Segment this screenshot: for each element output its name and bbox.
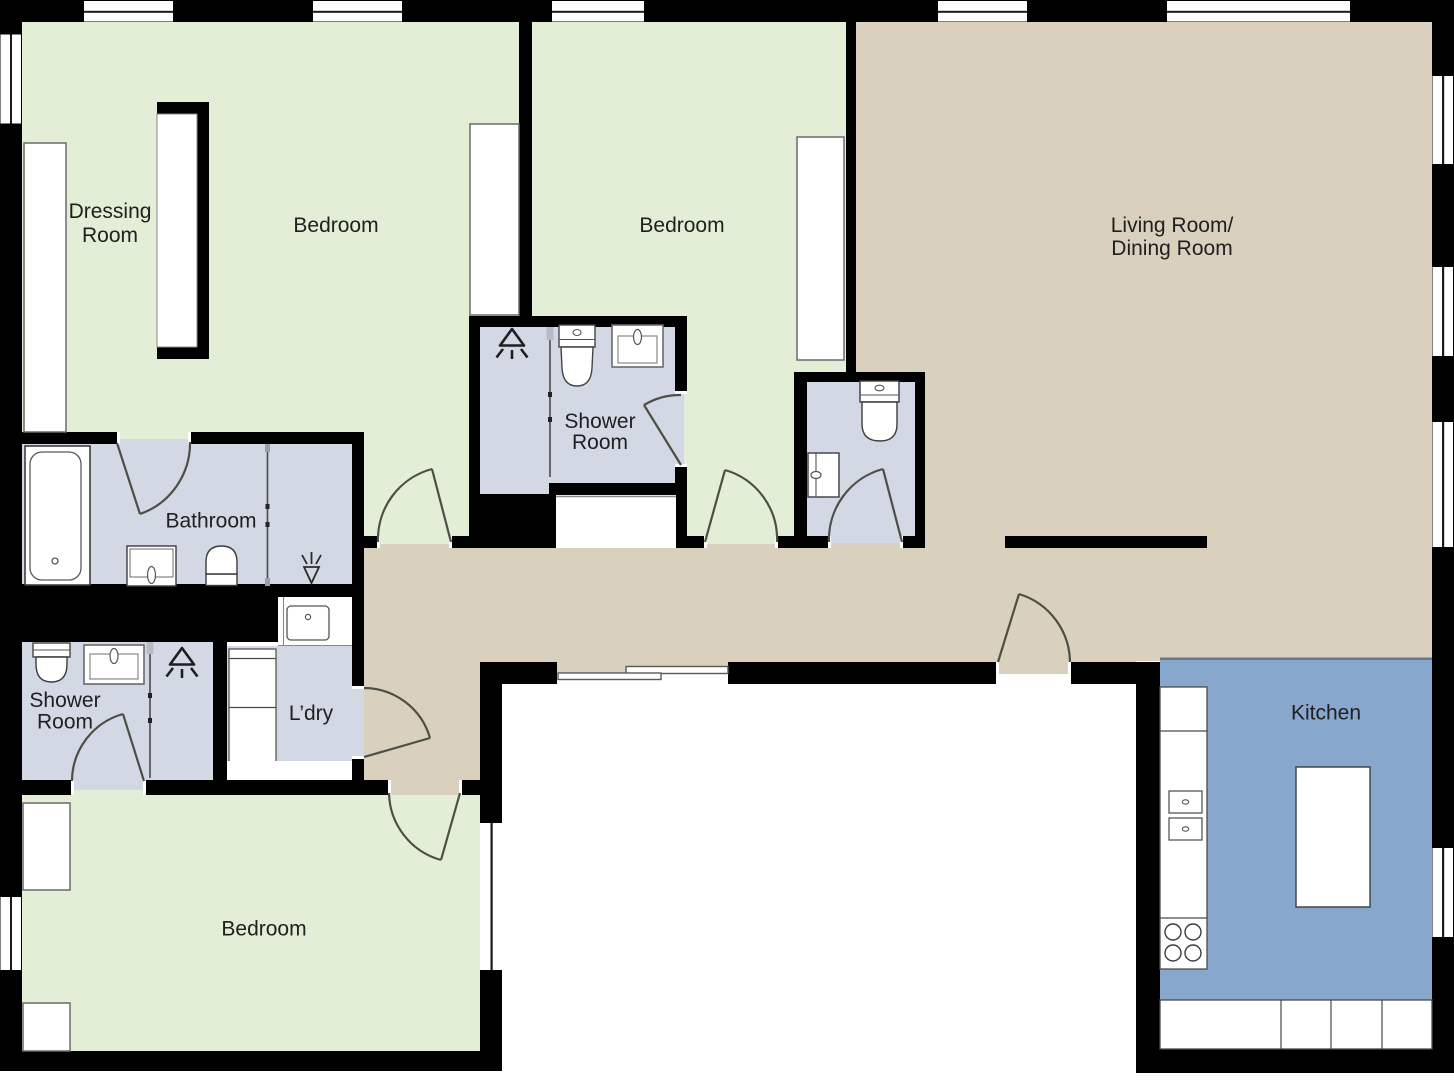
svg-text:L’dry: L’dry [289,702,334,725]
svg-text:Dressing: Dressing [69,200,152,223]
svg-text:Dining Room: Dining Room [1111,237,1232,260]
svg-text:Bathroom: Bathroom [165,510,256,533]
svg-text:Room: Room [572,431,628,454]
svg-text:Bedroom: Bedroom [221,918,306,941]
svg-text:Living Room/: Living Room/ [1111,214,1234,237]
svg-text:Shower: Shower [29,689,100,712]
svg-text:Room: Room [82,224,138,247]
svg-text:Bedroom: Bedroom [639,214,724,237]
svg-text:Kitchen: Kitchen [1291,702,1361,725]
svg-text:Shower: Shower [564,410,635,433]
svg-text:Room: Room [37,711,93,734]
svg-text:Bedroom: Bedroom [293,214,378,237]
